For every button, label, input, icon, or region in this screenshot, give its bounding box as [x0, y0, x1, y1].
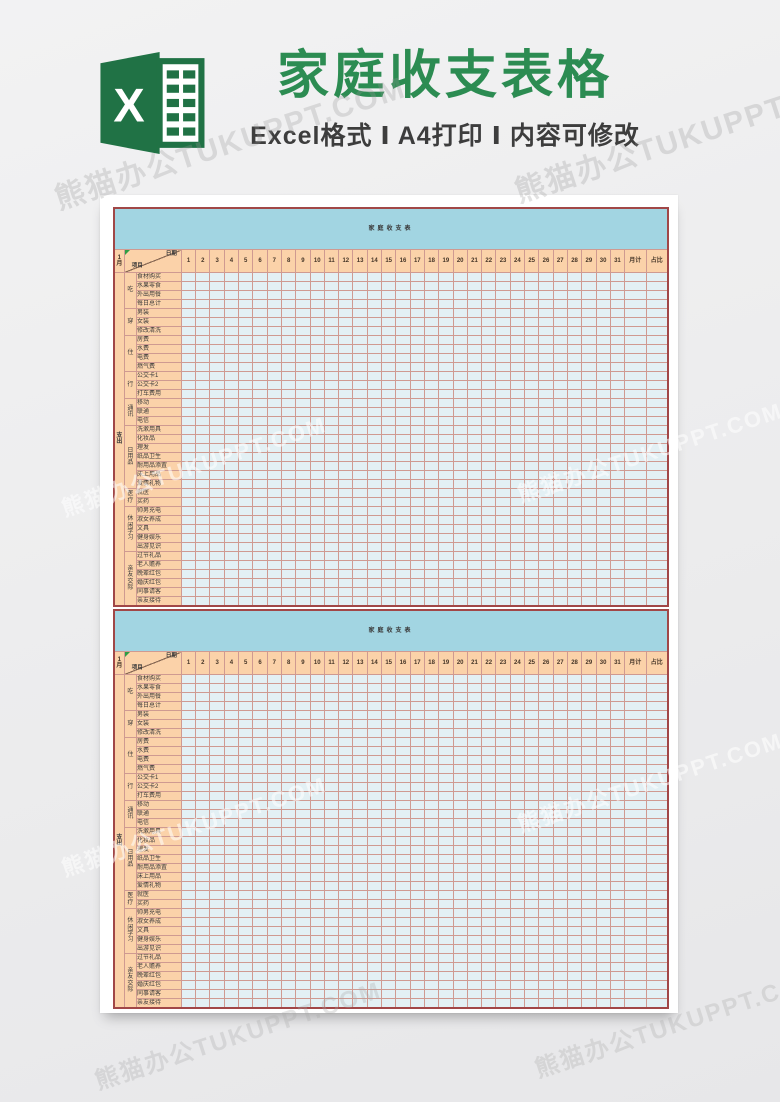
value-cell [482, 774, 496, 783]
value-cell [525, 480, 539, 489]
value-cell [582, 561, 596, 570]
value-cell [582, 783, 596, 792]
value-cell [625, 417, 646, 426]
expense-row: 穿男装 [114, 309, 668, 318]
value-cell [410, 327, 424, 336]
value-cell [382, 909, 396, 918]
value-cell [210, 873, 224, 882]
value-cell [582, 873, 596, 882]
value-cell [482, 711, 496, 720]
value-cell [496, 309, 510, 318]
value-cell [253, 819, 267, 828]
value-cell [324, 738, 338, 747]
value-cell [424, 963, 438, 972]
value-cell [510, 774, 524, 783]
value-cell [196, 963, 210, 972]
day-header-cell: 15 [382, 652, 396, 675]
value-cell [510, 738, 524, 747]
expense-row: 修改清洗 [114, 729, 668, 738]
value-cell [296, 579, 310, 588]
value-cell [539, 408, 553, 417]
value-cell [181, 702, 195, 711]
month-header-cell: 1月 [114, 250, 124, 273]
value-cell [310, 336, 324, 345]
value-cell [281, 783, 295, 792]
value-cell [253, 282, 267, 291]
item-label-cell: 燃气费 [136, 363, 181, 372]
value-cell [253, 507, 267, 516]
value-cell [267, 471, 281, 480]
value-cell [382, 936, 396, 945]
value-cell [439, 489, 453, 498]
value-cell [310, 891, 324, 900]
value-cell [553, 426, 567, 435]
item-label-cell: 同事请客 [136, 990, 181, 999]
category-group-cell: 穿 [124, 711, 136, 738]
value-cell [567, 399, 581, 408]
value-cell [196, 507, 210, 516]
value-cell [324, 801, 338, 810]
value-cell [296, 552, 310, 561]
value-cell [382, 774, 396, 783]
value-cell [353, 363, 367, 372]
value-cell [582, 945, 596, 954]
value-cell [567, 891, 581, 900]
value-cell [424, 498, 438, 507]
value-cell [625, 837, 646, 846]
value-cell [625, 891, 646, 900]
value-cell [610, 525, 624, 534]
value-cell [296, 855, 310, 864]
value-cell [267, 327, 281, 336]
value-cell [310, 954, 324, 963]
value-cell [310, 693, 324, 702]
value-cell [467, 954, 481, 963]
value-cell [467, 345, 481, 354]
value-cell [410, 372, 424, 381]
value-cell [196, 543, 210, 552]
value-cell [396, 954, 410, 963]
value-cell [281, 300, 295, 309]
value-cell [596, 363, 610, 372]
value-cell [582, 936, 596, 945]
value-cell [553, 561, 567, 570]
value-cell [210, 354, 224, 363]
value-cell [281, 507, 295, 516]
value-cell [646, 684, 668, 693]
value-cell [496, 480, 510, 489]
value-cell [310, 774, 324, 783]
value-cell [382, 891, 396, 900]
value-cell [510, 954, 524, 963]
value-cell [439, 981, 453, 990]
value-cell [310, 534, 324, 543]
value-cell [267, 273, 281, 282]
value-cell [196, 435, 210, 444]
expense-row: 晚辈红包 [114, 972, 668, 981]
value-cell [267, 711, 281, 720]
value-cell [453, 828, 467, 837]
value-cell [453, 480, 467, 489]
value-cell [625, 936, 646, 945]
value-cell [324, 516, 338, 525]
value-cell [267, 408, 281, 417]
value-cell [339, 693, 353, 702]
value-cell [339, 801, 353, 810]
value-cell [382, 489, 396, 498]
value-cell [382, 390, 396, 399]
day-header-cell: 11 [324, 250, 338, 273]
value-cell [239, 426, 253, 435]
value-cell [396, 552, 410, 561]
value-cell [224, 300, 238, 309]
template-preview-page: 家庭收支表1月日期项目12345678910111213141516171819… [100, 195, 678, 1013]
value-cell [610, 963, 624, 972]
value-cell [253, 354, 267, 363]
value-cell [439, 345, 453, 354]
value-cell [224, 291, 238, 300]
value-cell [253, 711, 267, 720]
value-cell [553, 954, 567, 963]
expense-row: 亲友交际过节礼品 [114, 552, 668, 561]
value-cell [439, 702, 453, 711]
value-cell [424, 675, 438, 684]
value-cell [353, 801, 367, 810]
day-header-cell: 13 [353, 250, 367, 273]
value-cell [525, 891, 539, 900]
value-cell [453, 945, 467, 954]
value-cell [553, 579, 567, 588]
value-cell [310, 345, 324, 354]
value-cell [482, 372, 496, 381]
value-cell [310, 918, 324, 927]
day-header-cell: 31 [610, 652, 624, 675]
value-cell [567, 675, 581, 684]
corner-label-date: 日期 [166, 654, 177, 660]
item-label-cell: 食材购买 [136, 675, 181, 684]
value-cell [439, 675, 453, 684]
value-cell [296, 819, 310, 828]
value-cell [239, 702, 253, 711]
value-cell [496, 873, 510, 882]
item-label-cell: 亲友接待 [136, 999, 181, 1009]
value-cell [181, 675, 195, 684]
value-cell [339, 480, 353, 489]
value-cell [410, 765, 424, 774]
value-cell [196, 399, 210, 408]
expense-row: 住房费 [114, 738, 668, 747]
axis-label-expense: 支出 [114, 675, 124, 1009]
value-cell [210, 525, 224, 534]
value-cell [239, 408, 253, 417]
value-cell [367, 729, 381, 738]
value-cell [410, 570, 424, 579]
value-cell [253, 579, 267, 588]
value-cell [239, 363, 253, 372]
value-cell [339, 738, 353, 747]
value-cell [181, 783, 195, 792]
value-cell [453, 345, 467, 354]
expense-row: 休闲学习帅男充电 [114, 909, 668, 918]
value-cell [224, 972, 238, 981]
value-cell [210, 426, 224, 435]
value-cell [253, 417, 267, 426]
value-cell [539, 327, 553, 336]
value-cell [496, 597, 510, 607]
value-cell [253, 792, 267, 801]
value-cell [224, 954, 238, 963]
value-cell [467, 864, 481, 873]
value-cell [281, 846, 295, 855]
value-cell [410, 516, 424, 525]
value-cell [339, 336, 353, 345]
value-cell [296, 963, 310, 972]
value-cell [224, 525, 238, 534]
value-cell [210, 435, 224, 444]
value-cell [410, 318, 424, 327]
value-cell [424, 417, 438, 426]
value-cell [439, 837, 453, 846]
value-cell [582, 900, 596, 909]
value-cell [410, 525, 424, 534]
value-cell [582, 774, 596, 783]
value-cell [310, 810, 324, 819]
value-cell [324, 507, 338, 516]
value-cell [510, 399, 524, 408]
value-cell [224, 390, 238, 399]
value-cell [496, 498, 510, 507]
value-cell [646, 408, 668, 417]
value-cell [210, 900, 224, 909]
value-cell [525, 702, 539, 711]
expense-sheet-1: 家庭收支表1月日期项目12345678910111213141516171819… [113, 207, 669, 607]
value-cell [596, 963, 610, 972]
item-label-cell: 耐用品添置 [136, 864, 181, 873]
value-cell [553, 918, 567, 927]
value-cell [281, 990, 295, 999]
value-cell [210, 792, 224, 801]
value-cell [253, 399, 267, 408]
value-cell [281, 489, 295, 498]
expense-row: 水费 [114, 747, 668, 756]
value-cell [353, 729, 367, 738]
value-cell [367, 462, 381, 471]
expense-row: 医疗就医 [114, 891, 668, 900]
value-cell [625, 927, 646, 936]
value-cell [181, 390, 195, 399]
value-cell [210, 954, 224, 963]
value-cell [281, 855, 295, 864]
value-cell [467, 765, 481, 774]
value-cell [625, 507, 646, 516]
value-cell [646, 273, 668, 282]
value-cell [353, 534, 367, 543]
value-cell [353, 435, 367, 444]
value-cell [539, 765, 553, 774]
value-cell [510, 873, 524, 882]
value-cell [396, 999, 410, 1009]
value-cell [525, 729, 539, 738]
value-cell [439, 972, 453, 981]
item-label-cell: 理发 [136, 444, 181, 453]
value-cell [210, 891, 224, 900]
value-cell [181, 990, 195, 999]
value-cell [610, 579, 624, 588]
value-cell [539, 588, 553, 597]
value-cell [253, 444, 267, 453]
value-cell [281, 864, 295, 873]
value-cell [224, 345, 238, 354]
value-cell [281, 399, 295, 408]
value-cell [646, 561, 668, 570]
day-header-cell: 21 [467, 652, 481, 675]
value-cell [467, 426, 481, 435]
value-cell [424, 435, 438, 444]
value-cell [625, 702, 646, 711]
value-cell [439, 720, 453, 729]
item-label-cell: 女装 [136, 318, 181, 327]
value-cell [281, 516, 295, 525]
value-cell [382, 819, 396, 828]
value-cell [467, 579, 481, 588]
value-cell [439, 372, 453, 381]
item-label-cell: 公交卡2 [136, 783, 181, 792]
value-cell [210, 471, 224, 480]
value-cell [196, 909, 210, 918]
value-cell [267, 363, 281, 372]
value-cell [610, 873, 624, 882]
value-cell [339, 435, 353, 444]
value-cell [210, 336, 224, 345]
value-cell [453, 702, 467, 711]
item-label-cell: 淑女养成 [136, 918, 181, 927]
value-cell [567, 435, 581, 444]
value-cell [253, 489, 267, 498]
value-cell [439, 927, 453, 936]
expense-row: 理发 [114, 444, 668, 453]
value-cell [582, 390, 596, 399]
value-cell [525, 426, 539, 435]
value-cell [281, 765, 295, 774]
value-cell [253, 945, 267, 954]
value-cell [382, 462, 396, 471]
value-cell [596, 684, 610, 693]
value-cell [482, 828, 496, 837]
value-cell [210, 720, 224, 729]
value-cell [196, 471, 210, 480]
value-cell [610, 675, 624, 684]
value-cell [510, 444, 524, 453]
value-cell [439, 426, 453, 435]
value-cell [367, 720, 381, 729]
value-cell [339, 990, 353, 999]
value-cell [324, 990, 338, 999]
item-label-cell: 修改清洗 [136, 327, 181, 336]
value-cell [410, 291, 424, 300]
value-cell [439, 864, 453, 873]
value-cell [224, 471, 238, 480]
value-cell [310, 927, 324, 936]
value-cell [553, 693, 567, 702]
value-cell [582, 882, 596, 891]
value-cell [239, 927, 253, 936]
value-cell [510, 720, 524, 729]
value-cell [539, 927, 553, 936]
value-cell [310, 747, 324, 756]
value-cell [610, 390, 624, 399]
value-cell [567, 381, 581, 390]
value-cell [596, 507, 610, 516]
value-cell [267, 390, 281, 399]
value-cell [510, 810, 524, 819]
value-cell [181, 756, 195, 765]
value-cell [539, 336, 553, 345]
value-cell [453, 837, 467, 846]
value-cell [324, 309, 338, 318]
value-cell [553, 543, 567, 552]
value-cell [625, 561, 646, 570]
value-cell [324, 756, 338, 765]
value-cell [210, 999, 224, 1009]
expense-row: 燃气费 [114, 765, 668, 774]
value-cell [625, 882, 646, 891]
value-cell [210, 684, 224, 693]
value-cell [510, 891, 524, 900]
day-header-cell: 18 [424, 250, 438, 273]
value-cell [467, 963, 481, 972]
value-cell [339, 702, 353, 711]
value-cell [553, 417, 567, 426]
value-cell [525, 291, 539, 300]
value-cell [353, 999, 367, 1009]
value-cell [510, 597, 524, 607]
value-cell [224, 891, 238, 900]
value-cell [424, 945, 438, 954]
value-cell [239, 774, 253, 783]
value-cell [539, 489, 553, 498]
value-cell [396, 345, 410, 354]
value-cell [610, 588, 624, 597]
value-cell [582, 273, 596, 282]
value-cell [239, 675, 253, 684]
value-cell [239, 381, 253, 390]
value-cell [610, 981, 624, 990]
value-cell [525, 990, 539, 999]
value-cell [253, 765, 267, 774]
value-cell [453, 498, 467, 507]
value-cell [196, 756, 210, 765]
value-cell [367, 525, 381, 534]
day-header-cell: 14 [367, 652, 381, 675]
value-cell [253, 480, 267, 489]
value-cell [596, 936, 610, 945]
value-cell [367, 579, 381, 588]
value-cell [324, 900, 338, 909]
value-cell [324, 954, 338, 963]
value-cell [453, 783, 467, 792]
value-cell [467, 828, 481, 837]
value-cell [467, 291, 481, 300]
value-cell [281, 891, 295, 900]
value-cell [324, 783, 338, 792]
value-cell [181, 837, 195, 846]
value-cell [410, 282, 424, 291]
value-cell [496, 882, 510, 891]
expense-row: 理发 [114, 846, 668, 855]
expense-row: 婚庆红包 [114, 981, 668, 990]
value-cell [196, 561, 210, 570]
value-cell [646, 927, 668, 936]
